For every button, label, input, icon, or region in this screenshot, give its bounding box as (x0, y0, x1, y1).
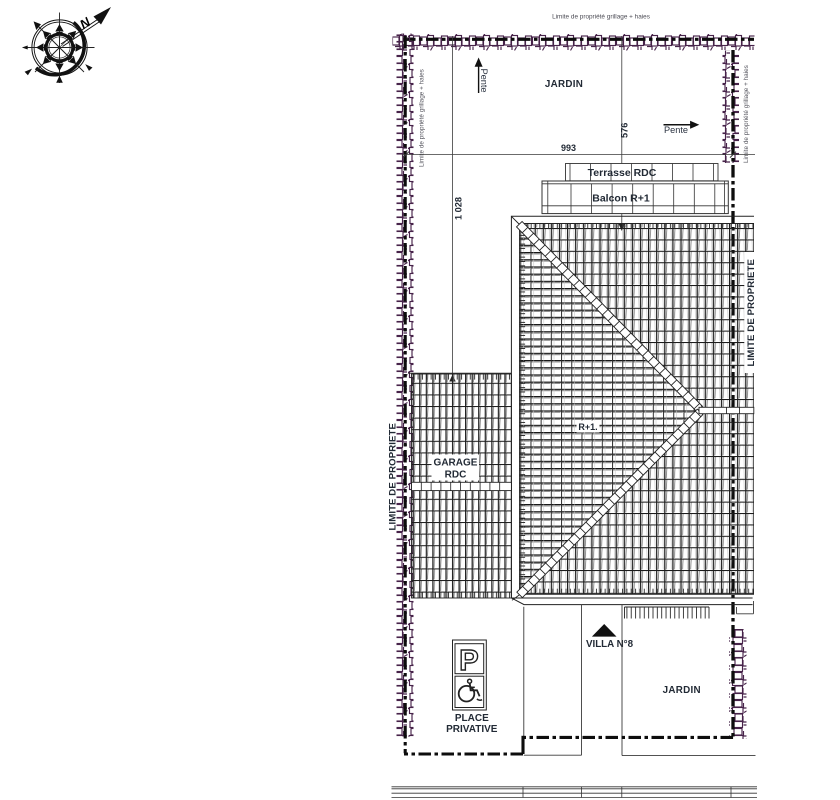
svg-text:Balcon R+1: Balcon R+1 (592, 193, 650, 205)
svg-text:1 028: 1 028 (454, 197, 464, 220)
svg-text:JARDIN: JARDIN (663, 685, 701, 696)
svg-text:Limite de propriété grillage +: Limite de propriété grillage + haies (552, 14, 650, 21)
svg-text:LIMITE DE PROPRIETE: LIMITE DE PROPRIETE (746, 259, 757, 367)
svg-text:PRIVATIVE: PRIVATIVE (446, 724, 498, 735)
svg-text:993: 993 (561, 143, 576, 153)
svg-text:LIMITE DE PROPRIETE: LIMITE DE PROPRIETE (388, 423, 399, 531)
svg-text:Pente: Pente (479, 69, 489, 93)
svg-text:P: P (459, 645, 478, 677)
svg-text:RDC: RDC (445, 470, 467, 481)
svg-text:576: 576 (620, 123, 630, 138)
svg-text:JARDIN: JARDIN (545, 79, 583, 90)
svg-text:PLACE: PLACE (455, 713, 489, 724)
svg-text:VILLA N°8: VILLA N°8 (586, 639, 634, 650)
svg-text:Limite de propriété grillage +: Limite de propriété grillage + haies (419, 69, 426, 167)
svg-text:GARAGE: GARAGE (434, 458, 478, 469)
svg-text:Pente: Pente (664, 125, 688, 135)
svg-text:Limite de propriété grillage +: Limite de propriété grillage + haies (743, 65, 750, 163)
svg-text:R+1.: R+1. (578, 422, 597, 432)
svg-text:Terrasse RDC: Terrasse RDC (588, 167, 657, 179)
